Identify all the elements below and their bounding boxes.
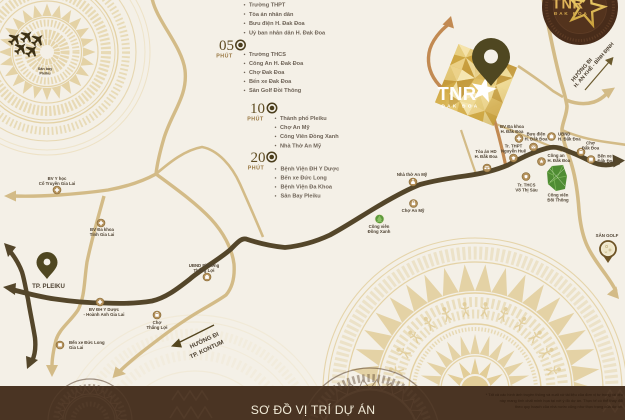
svg-text:SÂN GOLF: SÂN GOLF: [596, 233, 619, 238]
svg-text:Nguyễn Huệ: Nguyễn Huệ: [501, 148, 527, 153]
svg-text:Võ Thị Sáu: Võ Thị Sáu: [515, 187, 538, 192]
svg-text:TP. PLEIKU: TP. PLEIKU: [32, 283, 65, 290]
svg-text:Chợ An Mỹ: Chợ An Mỹ: [402, 208, 425, 213]
svg-text:20: 20: [251, 150, 266, 166]
svg-text:Công Viên Đồng Xanh: Công Viên Đồng Xanh: [280, 134, 339, 140]
svg-text:H. Đắk Đoa: H. Đắk Đoa: [548, 158, 571, 163]
svg-text:- Hoành Anh Gia Lai: - Hoành Anh Gia Lai: [84, 312, 125, 317]
svg-text:Thắng Lợi: Thắng Lợi: [147, 325, 168, 330]
svg-text:Nhà Thờ An Mỹ: Nhà Thờ An Mỹ: [280, 143, 322, 149]
svg-text:Trường THCS: Trường THCS: [249, 52, 286, 58]
svg-text:Sân Golf Đồi Thông: Sân Golf Đồi Thông: [249, 88, 302, 94]
svg-text:Cổ Truyền Gia Lai: Cổ Truyền Gia Lai: [39, 181, 76, 186]
svg-text:05: 05: [219, 38, 234, 54]
svg-text:Gia Lai: Gia Lai: [69, 345, 83, 350]
svg-text:Tòa án nhân dân: Tòa án nhân dân: [249, 12, 294, 18]
svg-text:Đồng Xanh: Đồng Xanh: [368, 229, 391, 234]
svg-text:PHÚT: PHÚT: [247, 115, 264, 122]
svg-text:Thắng Lợi: Thắng Lợi: [194, 268, 215, 273]
svg-text:Trường THPT: Trường THPT: [249, 3, 286, 9]
svg-text:theo quy hoạch của nhà nước cũ: theo quy hoạch của nhà nước cũng như thự…: [515, 404, 623, 409]
svg-text:H. Đắk Đoa: H. Đắk Đoa: [558, 136, 581, 141]
svg-text:Bến xe Đức Long: Bến xe Đức Long: [281, 175, 328, 182]
svg-text:PHÚT: PHÚT: [248, 164, 265, 171]
svg-text:Bệnh Viện ĐH Y Dược: Bệnh Viện ĐH Y Dược: [281, 167, 340, 173]
svg-text:H. Đắk Đoa: H. Đắk Đoa: [525, 136, 548, 141]
svg-text:* Tất cả các hình ảnh truyền t: * Tất cả các hình ảnh truyền thông và xu…: [486, 392, 623, 397]
svg-text:Công An H. Đak Đoa: Công An H. Đak Đoa: [249, 61, 304, 67]
svg-text:Đắk Đoa: Đắk Đoa: [582, 145, 600, 150]
svg-text:Chợ Đak Đoa: Chợ Đak Đoa: [249, 70, 285, 76]
svg-text:Sân bay: Sân bay: [38, 67, 53, 71]
svg-text:Bệnh Viện Đa Khoa: Bệnh Viện Đa Khoa: [281, 185, 333, 191]
svg-text:10: 10: [250, 101, 265, 117]
svg-text:Sân Bay Pleiku: Sân Bay Pleiku: [281, 194, 322, 200]
svg-text:Uỷ ban nhân dân H. Đak Đoa: Uỷ ban nhân dân H. Đak Đoa: [249, 30, 326, 36]
svg-text:H. Đắk Đoa: H. Đắk Đoa: [475, 154, 498, 159]
svg-text:Đồi Thông: Đồi Thông: [547, 197, 569, 202]
svg-text:PHÚT: PHÚT: [216, 52, 233, 59]
svg-text:H. Đắk Đoa: H. Đắk Đoa: [501, 129, 524, 134]
svg-text:Chợ An Mỹ: Chợ An Mỹ: [280, 125, 310, 131]
svg-text:TNR: TNR: [438, 83, 477, 104]
svg-text:Thành phố Pleiku: Thành phố Pleiku: [280, 115, 327, 122]
svg-text:Tỉnh Gia Lai: Tỉnh Gia Lai: [90, 232, 115, 237]
svg-text:SƠ ĐỒ VỊ TRÍ DỰ ÁN: SƠ ĐỒ VỊ TRÍ DỰ ÁN: [251, 402, 375, 417]
svg-text:này mang tính chất minh họa tạ: này mang tính chất minh họa tại với ý đồ…: [500, 398, 624, 403]
svg-text:Pleiku: Pleiku: [39, 72, 51, 76]
svg-text:Nhà thờ An Mỹ: Nhà thờ An Mỹ: [397, 172, 428, 177]
svg-text:Đắk Đoa: Đắk Đoa: [598, 158, 616, 163]
svg-text:ĐAK ĐOA: ĐAK ĐOA: [442, 104, 480, 109]
svg-text:Bến xe Đak Đoa: Bến xe Đak Đoa: [249, 78, 292, 85]
svg-text:Bưu điện H. Đak Đoa: Bưu điện H. Đak Đoa: [249, 21, 306, 27]
